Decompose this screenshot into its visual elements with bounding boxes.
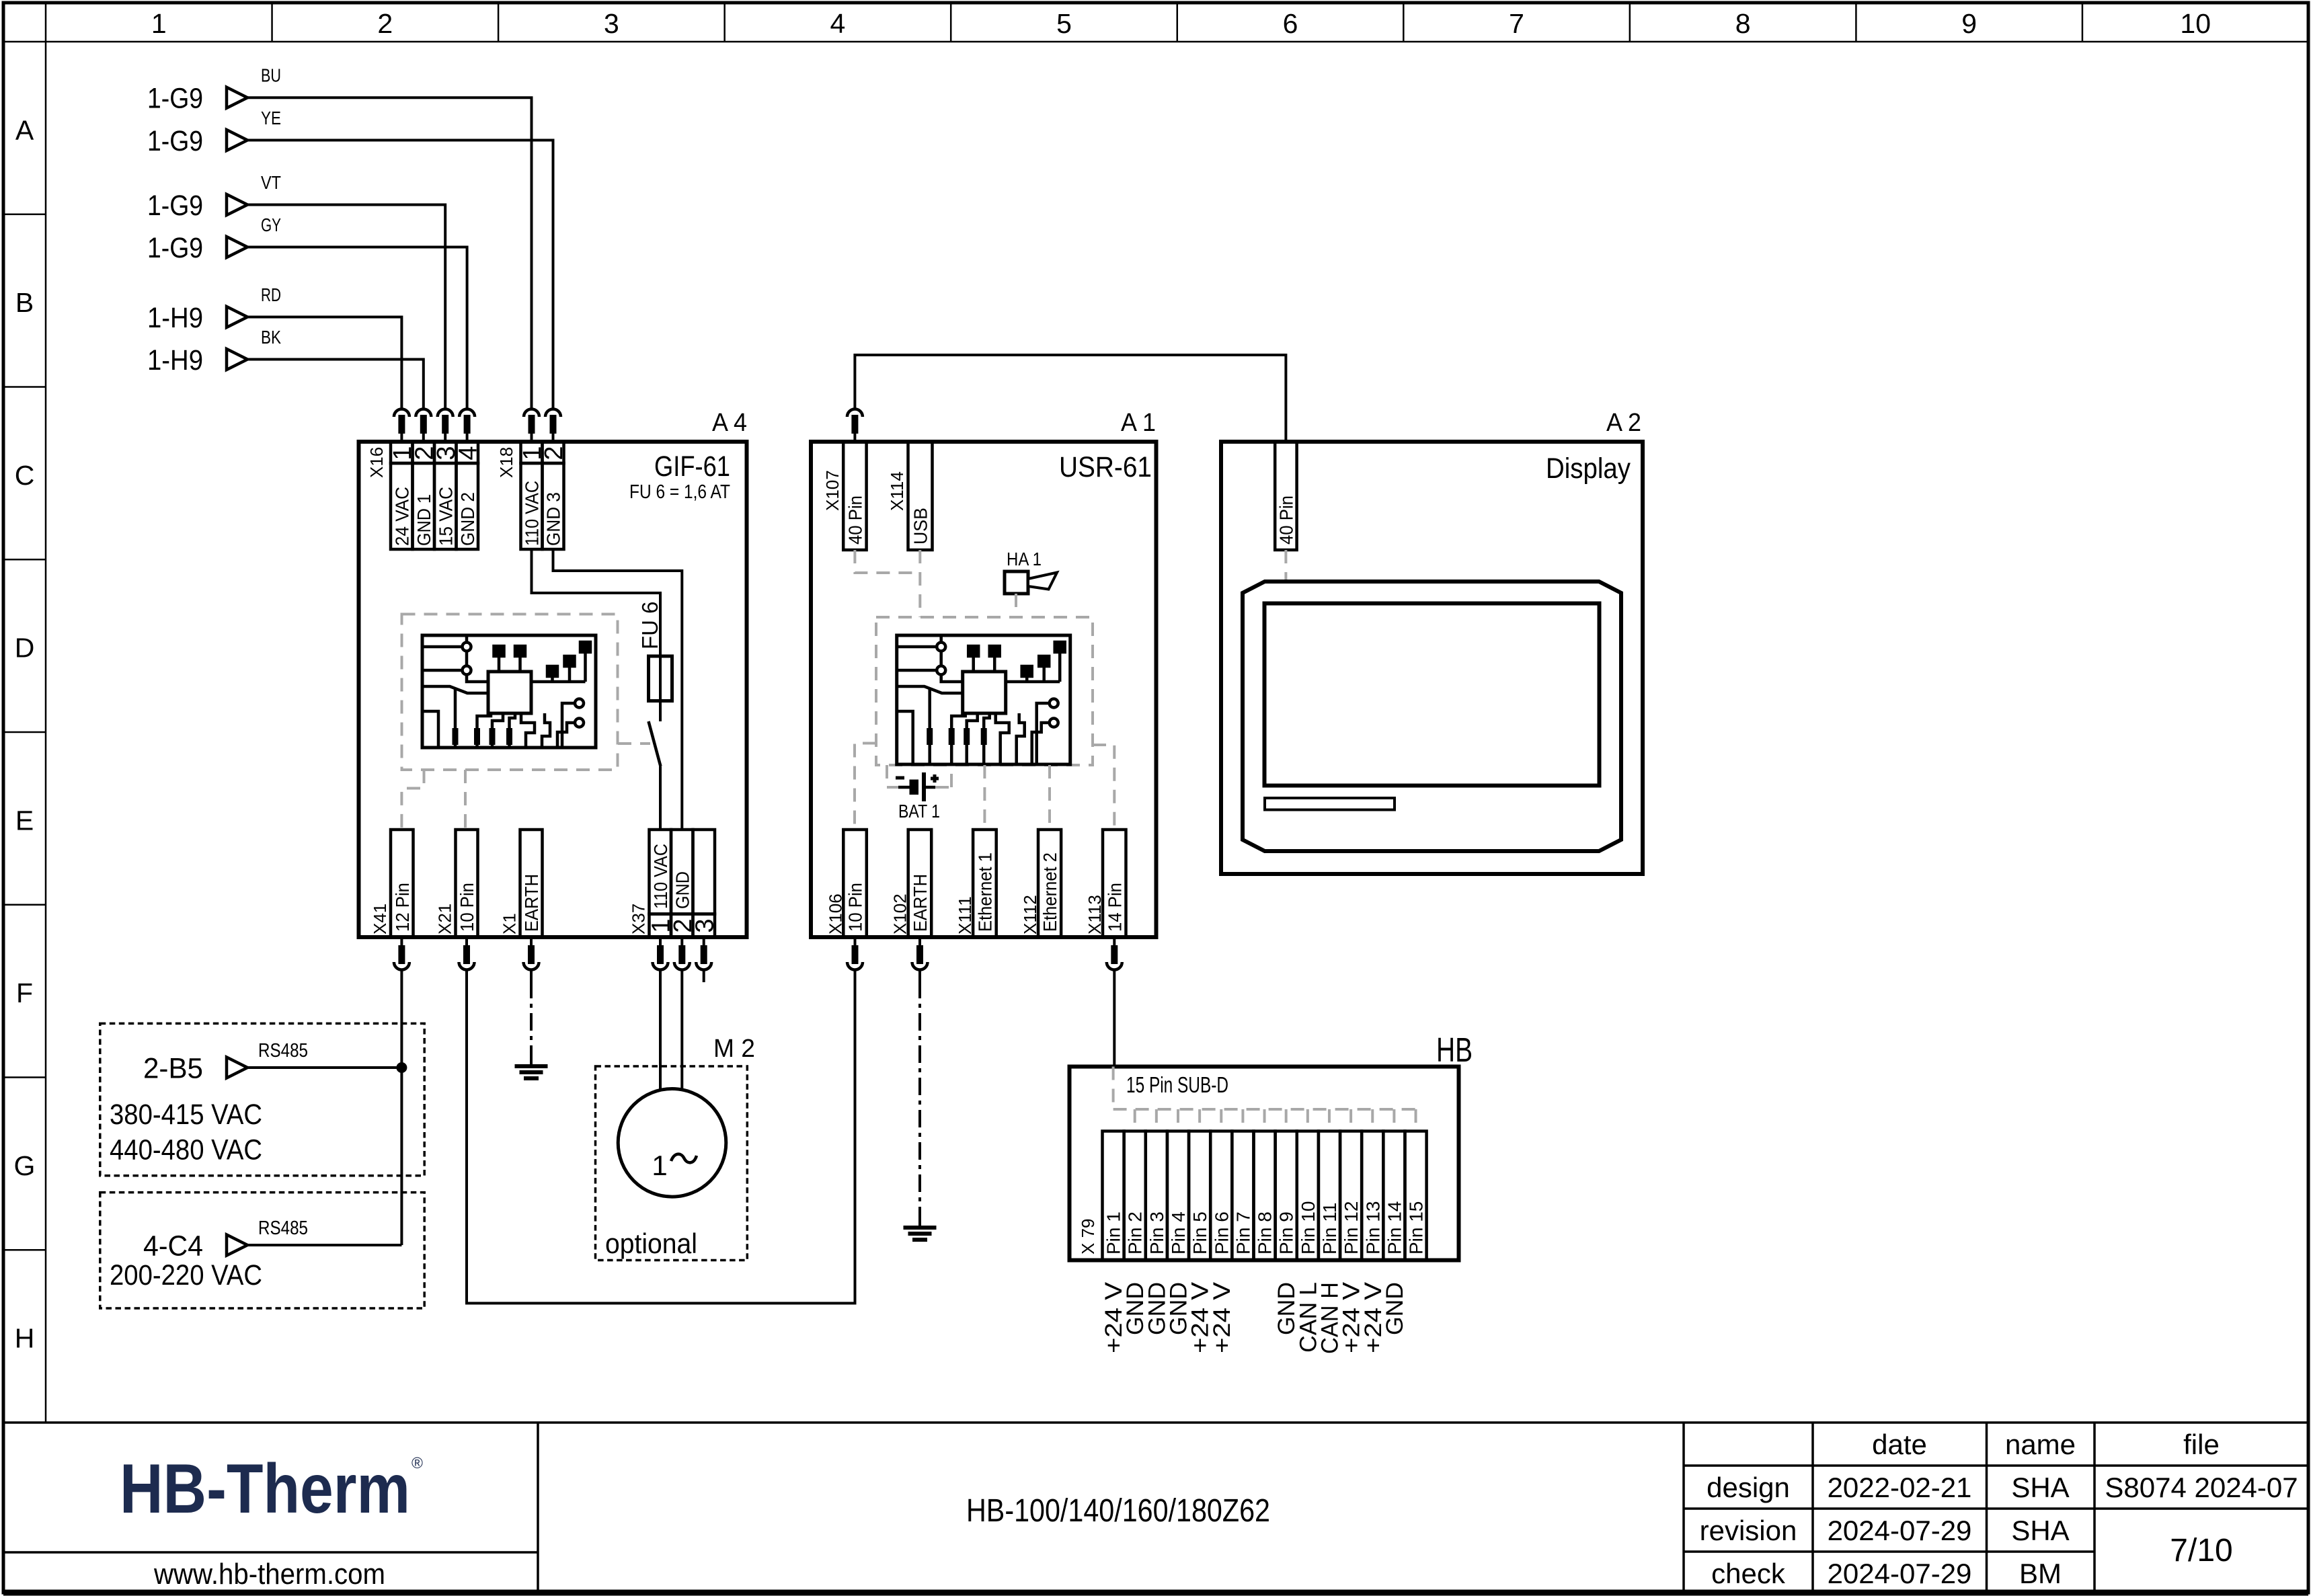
- svg-text:X114: X114: [887, 471, 907, 511]
- svg-text:1-G9: 1-G9: [147, 83, 203, 115]
- svg-text:X107: X107: [822, 470, 843, 511]
- svg-text:A 1: A 1: [1121, 409, 1156, 437]
- svg-text:6: 6: [1283, 8, 1298, 39]
- svg-text:1: 1: [151, 8, 167, 39]
- svg-text:C: C: [15, 460, 35, 491]
- svg-text:14 Pin: 14 Pin: [1104, 883, 1125, 932]
- svg-text:H: H: [15, 1323, 35, 1354]
- svg-text:1-G9: 1-G9: [147, 232, 203, 264]
- svg-text:1-G9: 1-G9: [147, 190, 203, 222]
- svg-text:HB: HB: [1436, 1031, 1473, 1069]
- svg-text:Ethernet 1: Ethernet 1: [974, 852, 995, 932]
- svg-text:X41: X41: [370, 904, 390, 934]
- svg-text:HB-Therm: HB-Therm: [120, 1450, 410, 1528]
- svg-text:BK: BK: [261, 327, 281, 348]
- svg-text:file: file: [2183, 1429, 2220, 1460]
- svg-text:E: E: [15, 805, 34, 836]
- svg-text:1-H9: 1-H9: [147, 302, 203, 334]
- svg-text:380-415 VAC: 380-415 VAC: [110, 1099, 262, 1131]
- svg-text:A 2: A 2: [1606, 409, 1641, 437]
- svg-text:X18: X18: [496, 447, 516, 478]
- svg-text:YE: YE: [261, 108, 281, 128]
- svg-text:GND: GND: [1382, 1282, 1408, 1335]
- svg-text:EARTH: EARTH: [910, 874, 931, 932]
- svg-text:BAT 1: BAT 1: [898, 801, 940, 822]
- svg-text:GND 1: GND 1: [414, 494, 434, 546]
- svg-text:EARTH: EARTH: [521, 874, 542, 932]
- svg-text:X106: X106: [825, 893, 845, 934]
- svg-text:optional: optional: [605, 1228, 697, 1259]
- svg-text:X 79: X 79: [1078, 1219, 1098, 1255]
- svg-text:USR-61: USR-61: [1059, 451, 1152, 483]
- svg-text:SHA: SHA: [2011, 1472, 2069, 1503]
- svg-text:X1: X1: [500, 913, 520, 934]
- svg-text:7/10: 7/10: [2170, 1533, 2232, 1568]
- svg-text:Ethernet 2: Ethernet 2: [1040, 852, 1060, 932]
- svg-text:3: 3: [604, 8, 619, 39]
- svg-text:X102: X102: [890, 893, 910, 934]
- svg-text:10: 10: [2180, 8, 2211, 39]
- svg-text:2024-07-29: 2024-07-29: [1828, 1515, 1972, 1546]
- svg-text:RS485: RS485: [258, 1040, 308, 1062]
- svg-text:X37: X37: [629, 904, 649, 934]
- svg-text:110 VAC: 110 VAC: [522, 481, 543, 546]
- svg-text:8: 8: [1735, 8, 1751, 39]
- svg-text:®: ®: [412, 1454, 423, 1472]
- svg-text:S8074 2024-07: S8074 2024-07: [2105, 1472, 2298, 1503]
- svg-text:F: F: [16, 977, 33, 1008]
- svg-text:USB: USB: [910, 508, 931, 545]
- svg-text:12 Pin: 12 Pin: [392, 883, 413, 932]
- svg-text:2-B5: 2-B5: [143, 1053, 203, 1085]
- svg-text:40 Pin: 40 Pin: [845, 495, 865, 545]
- svg-text:5: 5: [1056, 8, 1072, 39]
- svg-text:7: 7: [1509, 8, 1524, 39]
- svg-text:FU 6: FU 6: [637, 601, 662, 649]
- svg-text:Pin 15: Pin 15: [1406, 1201, 1427, 1254]
- svg-text:9: 9: [1961, 8, 1977, 39]
- svg-text:1: 1: [652, 1150, 667, 1181]
- svg-text:design: design: [1707, 1472, 1790, 1503]
- svg-text:24 VAC: 24 VAC: [391, 487, 412, 546]
- svg-text:Pin 10: Pin 10: [1298, 1201, 1319, 1254]
- svg-text:check: check: [1711, 1558, 1786, 1589]
- svg-text:FU 6 = 1,6 AT: FU 6 = 1,6 AT: [629, 481, 730, 503]
- svg-text:40 Pin: 40 Pin: [1276, 495, 1296, 545]
- svg-text:2: 2: [377, 8, 393, 39]
- svg-text:Pin 2: Pin 2: [1125, 1211, 1146, 1254]
- svg-text:110 VAC: 110 VAC: [650, 844, 671, 909]
- svg-text:440-480 VAC: 440-480 VAC: [110, 1134, 262, 1166]
- svg-text:200-220 VAC: 200-220 VAC: [110, 1259, 262, 1291]
- svg-text:GND 2: GND 2: [457, 492, 478, 546]
- svg-text:www.hb-therm.com: www.hb-therm.com: [153, 1558, 385, 1591]
- svg-text:Pin 13: Pin 13: [1362, 1201, 1383, 1254]
- svg-text:X112: X112: [1020, 895, 1040, 934]
- svg-text:Pin 3: Pin 3: [1146, 1211, 1167, 1254]
- svg-text:date: date: [1872, 1429, 1927, 1460]
- svg-text:Pin 8: Pin 8: [1255, 1211, 1276, 1254]
- svg-text:revision: revision: [1700, 1515, 1797, 1546]
- svg-text:4-C4: 4-C4: [143, 1230, 203, 1263]
- svg-text:A: A: [15, 114, 34, 145]
- svg-text:Pin 1: Pin 1: [1103, 1211, 1124, 1254]
- svg-text:X16: X16: [366, 447, 387, 478]
- svg-text:A 4: A 4: [712, 409, 747, 437]
- svg-text:HA 1: HA 1: [1007, 549, 1042, 569]
- svg-text:+24 V: +24 V: [1209, 1281, 1235, 1353]
- svg-text:D: D: [15, 633, 35, 664]
- svg-text:G: G: [14, 1150, 36, 1181]
- svg-text:SHA: SHA: [2011, 1515, 2069, 1546]
- svg-text:GY: GY: [261, 214, 281, 235]
- svg-text:M 2: M 2: [713, 1035, 755, 1063]
- svg-text:GND 3: GND 3: [543, 492, 564, 546]
- svg-text:GND: GND: [672, 871, 693, 909]
- svg-text:X21: X21: [435, 904, 455, 934]
- svg-text:Pin 6: Pin 6: [1211, 1211, 1232, 1254]
- svg-text:VT: VT: [261, 172, 281, 193]
- svg-text:Pin 7: Pin 7: [1232, 1211, 1253, 1254]
- svg-text:Pin 9: Pin 9: [1276, 1211, 1297, 1254]
- svg-text:GIF-61: GIF-61: [654, 450, 730, 483]
- svg-text:Pin 4: Pin 4: [1168, 1211, 1189, 1254]
- svg-text:15 VAC: 15 VAC: [435, 487, 456, 546]
- svg-text:RS485: RS485: [258, 1218, 308, 1239]
- svg-text:BM: BM: [2019, 1558, 2062, 1589]
- svg-text:Pin 14: Pin 14: [1384, 1201, 1405, 1254]
- svg-text:1-H9: 1-H9: [147, 344, 203, 376]
- svg-text:1-G9: 1-G9: [147, 125, 203, 157]
- svg-text:BU: BU: [261, 65, 281, 86]
- svg-text:10 Pin: 10 Pin: [457, 883, 477, 932]
- svg-text:10 Pin: 10 Pin: [845, 883, 866, 932]
- svg-text:15 Pin SUB-D: 15 Pin SUB-D: [1126, 1072, 1228, 1097]
- svg-text:3: 3: [691, 918, 719, 932]
- svg-text:HB-100/140/160/180Z62: HB-100/140/160/180Z62: [966, 1493, 1270, 1529]
- svg-text:2: 2: [540, 446, 568, 460]
- svg-text:RD: RD: [261, 284, 281, 305]
- svg-text:Pin 12: Pin 12: [1341, 1201, 1362, 1254]
- svg-text:X113: X113: [1085, 895, 1105, 934]
- svg-text:Pin 11: Pin 11: [1319, 1203, 1340, 1254]
- svg-text:B: B: [15, 287, 34, 318]
- svg-text:4: 4: [830, 8, 846, 39]
- svg-text:Display: Display: [1546, 452, 1631, 485]
- svg-text:2022-02-21: 2022-02-21: [1828, 1472, 1972, 1503]
- svg-text:name: name: [2005, 1429, 2076, 1460]
- svg-text:Pin 5: Pin 5: [1189, 1211, 1210, 1254]
- svg-text:4: 4: [454, 446, 482, 460]
- svg-text:2024-07-29: 2024-07-29: [1828, 1558, 1972, 1589]
- svg-text:X111: X111: [955, 896, 975, 934]
